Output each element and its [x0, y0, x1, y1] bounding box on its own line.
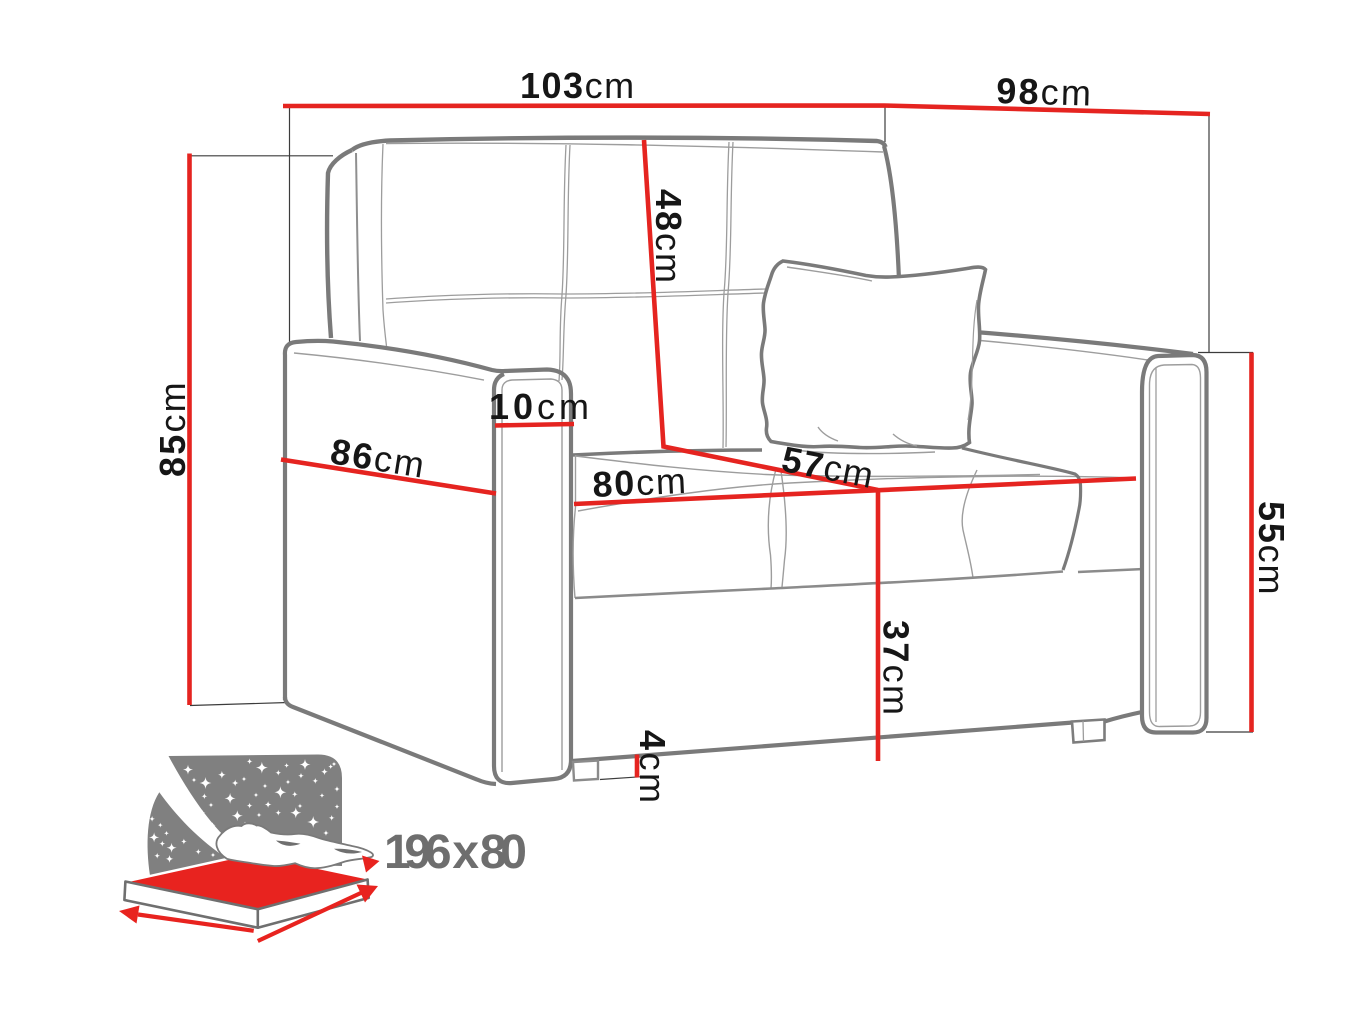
svg-text:37cm: 37cm — [876, 620, 917, 717]
svg-text:48cm: 48cm — [648, 189, 689, 285]
svg-text:103cm: 103cm — [520, 65, 636, 106]
svg-text:80cm: 80cm — [592, 460, 689, 505]
svg-text:85cm: 85cm — [152, 380, 193, 477]
svg-text:98cm: 98cm — [996, 70, 1094, 114]
svg-text:10cm: 10cm — [489, 386, 593, 427]
svg-text:4cm: 4cm — [632, 730, 673, 806]
svg-text:196 x 80: 196 x 80 — [384, 826, 527, 879]
svg-text:55cm: 55cm — [1251, 501, 1292, 596]
